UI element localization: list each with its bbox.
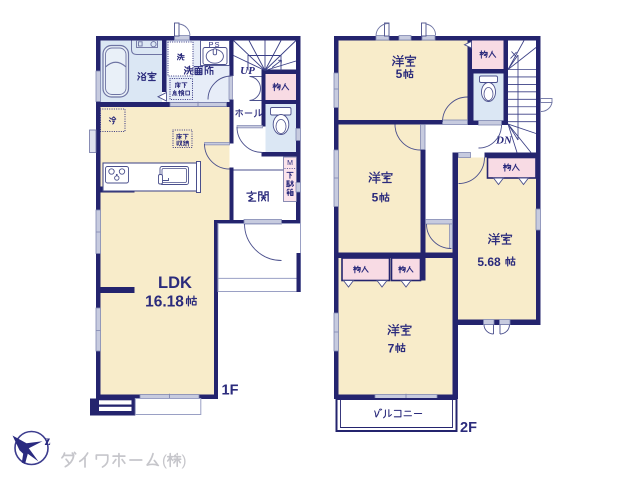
svg-text:M: M xyxy=(287,160,293,167)
svg-text:2F: 2F xyxy=(460,420,477,436)
svg-text:7: 7 xyxy=(388,342,395,356)
svg-text:16.18: 16.18 xyxy=(145,294,184,311)
svg-text:5: 5 xyxy=(396,67,403,81)
svg-text:1F: 1F xyxy=(222,383,239,399)
svg-text:DN: DN xyxy=(495,135,513,147)
svg-text:UP: UP xyxy=(240,65,255,77)
svg-text:LDK: LDK xyxy=(158,274,192,292)
svg-text:): ) xyxy=(182,453,187,470)
svg-text:(: ( xyxy=(162,453,167,470)
svg-text:5: 5 xyxy=(372,191,379,205)
svg-text:z: z xyxy=(45,433,51,448)
svg-text:5.68: 5.68 xyxy=(477,255,501,269)
